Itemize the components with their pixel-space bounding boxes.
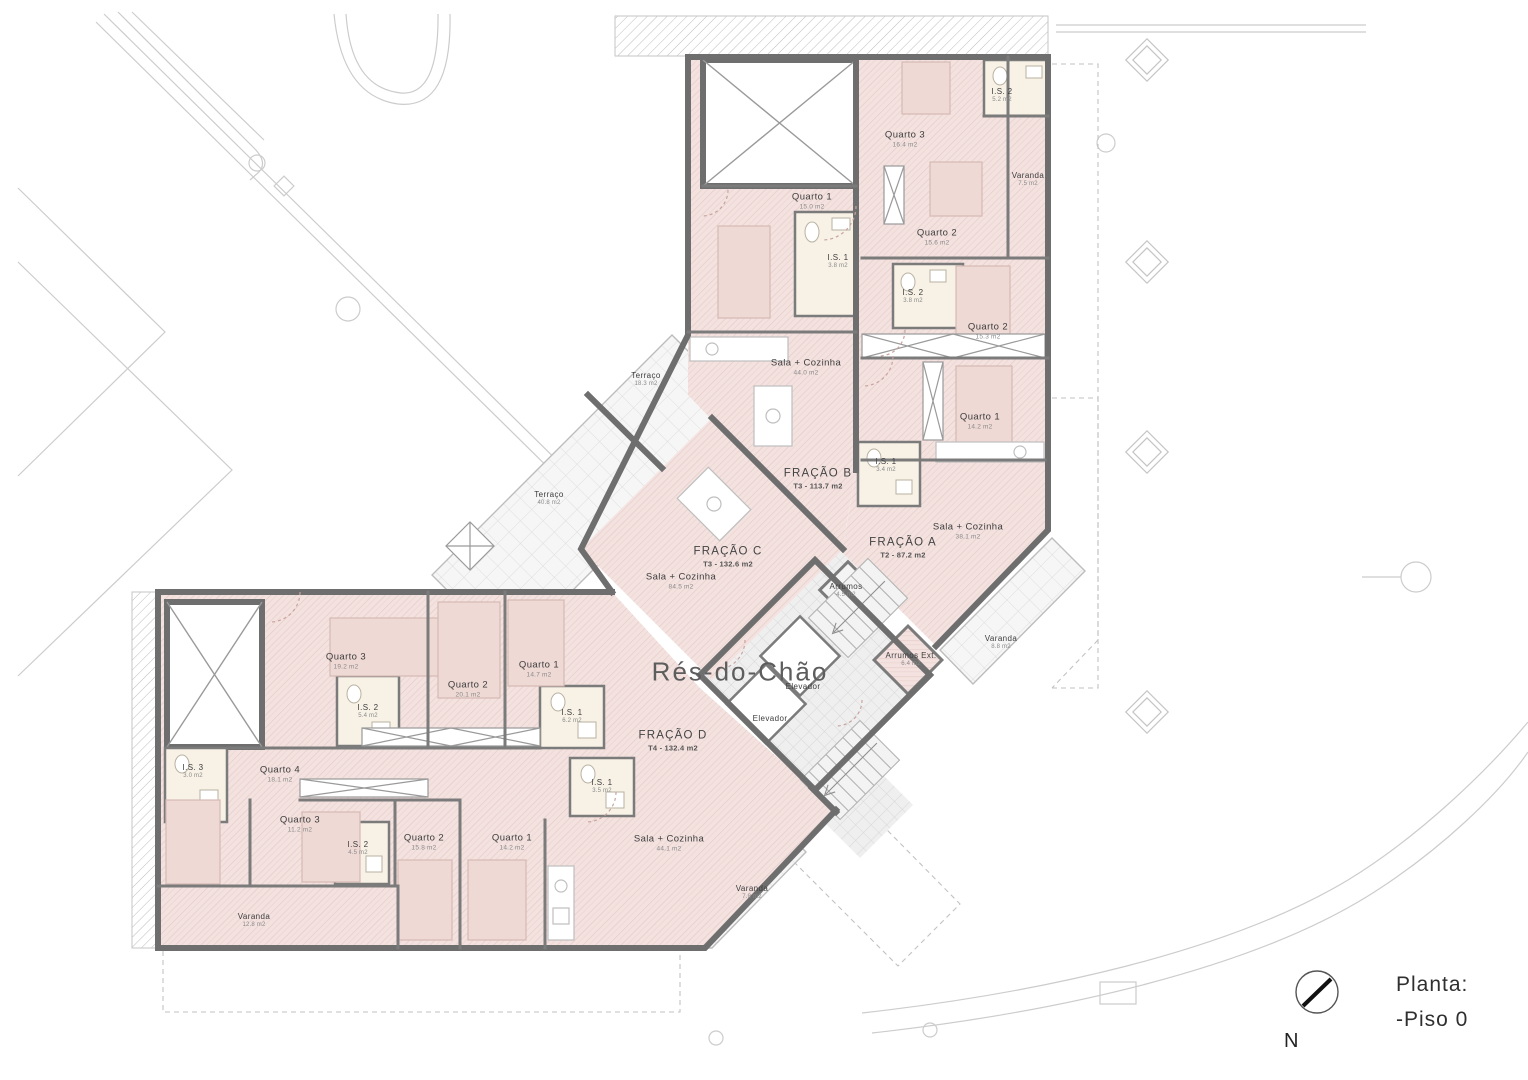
room-area: 5.4 m2	[357, 713, 378, 721]
room-name: Terraço	[631, 371, 660, 381]
room-name: I.S. 2	[347, 840, 368, 850]
room-label: Quarto 418.1 m2	[260, 765, 300, 786]
room-name: I.S. 2	[991, 87, 1012, 97]
room-name: I.S. 1	[827, 253, 848, 263]
room-name: Varanda	[736, 884, 768, 894]
room-area: 16.4 m2	[885, 142, 925, 150]
room-label: Sala + Cozinha44.1 m2	[634, 834, 704, 855]
room-label: I.S. 16.2 m2	[561, 708, 582, 726]
fraction-label: FRAÇÃO DT4 - 132.4 m2	[638, 729, 707, 754]
room-label: Quarto 215.6 m2	[917, 228, 957, 249]
room-area: 3.8 m2	[827, 263, 848, 271]
room-label: Quarto 220.1 m2	[448, 680, 488, 701]
room-label: Varanda8.8 m2	[985, 634, 1017, 652]
room-area: T4 - 132.4 m2	[638, 744, 707, 754]
room-name: I.S. 3	[182, 763, 203, 773]
fraction-label: FRAÇÃO BT3 - 113.7 m2	[784, 467, 852, 492]
room-name: Quarto 2	[968, 322, 1008, 334]
title-block-label: Planta:	[1396, 968, 1468, 1003]
room-name: Quarto 1	[792, 192, 832, 204]
room-label: Varanda7.5 m2	[1012, 171, 1044, 189]
room-label: Quarto 114.2 m2	[492, 833, 532, 854]
room-area: 4.5 m2	[829, 592, 862, 600]
room-name: Quarto 2	[404, 833, 444, 845]
room-label: I.S. 25.2 m2	[991, 87, 1012, 105]
room-area: 11.2 m2	[280, 827, 320, 835]
room-area: 5.2 m2	[991, 97, 1012, 105]
room-name: FRAÇÃO A	[869, 536, 937, 551]
room-area: 19.2 m2	[326, 664, 366, 672]
room-area: 7.8 m2	[736, 894, 768, 902]
room-area: 12.8 m2	[238, 922, 270, 930]
room-name: Terraço	[534, 490, 563, 500]
title-block-floor: -Piso 0	[1396, 1003, 1468, 1038]
room-label: Quarto 215.3 m2	[968, 322, 1008, 343]
room-area: 6.2 m2	[561, 718, 582, 726]
room-name: FRAÇÃO D	[638, 729, 707, 744]
room-area: 3.4 m2	[875, 467, 896, 475]
room-name: I.S. 1	[561, 708, 582, 718]
north-label: N	[1284, 1030, 1298, 1053]
room-area: 44.0 m2	[771, 370, 841, 378]
room-name: Sala + Cozinha	[933, 522, 1003, 534]
room-area: 3.5 m2	[591, 788, 612, 796]
room-label: Quarto 115.0 m2	[792, 192, 832, 213]
room-name: I.S. 2	[902, 288, 923, 298]
room-label: I.S. 13.4 m2	[875, 457, 896, 475]
room-label: I.S. 13.5 m2	[591, 778, 612, 796]
room-label: Sala + Cozinha84.5 m2	[646, 572, 716, 593]
room-area: 7.5 m2	[1012, 181, 1044, 189]
room-name: Sala + Cozinha	[646, 572, 716, 584]
room-label: Terraço18.3 m2	[631, 371, 660, 389]
room-area: 15.6 m2	[917, 240, 957, 248]
room-name: Sala + Cozinha	[634, 834, 704, 846]
room-label: Quarto 114.7 m2	[519, 660, 559, 681]
room-area: T3 - 113.7 m2	[784, 482, 852, 492]
room-area: 6.4 m2	[885, 661, 936, 669]
room-name: Arrumos	[829, 582, 862, 592]
room-label: Sala + Cozinha38.1 m2	[933, 522, 1003, 543]
room-name: Quarto 2	[917, 228, 957, 240]
room-name: Quarto 3	[280, 815, 320, 827]
room-name: Sala + Cozinha	[771, 358, 841, 370]
room-label: Arrumos4.5 m2	[829, 582, 862, 600]
room-name: Arrumos Ext.	[885, 651, 936, 661]
room-name: Varanda	[238, 912, 270, 922]
room-label: I.S. 33.0 m2	[182, 763, 203, 781]
room-name: Quarto 1	[519, 660, 559, 672]
room-name: Elevador	[753, 714, 788, 724]
room-area: 84.5 m2	[646, 584, 716, 592]
room-name: Varanda	[1012, 171, 1044, 181]
room-label: I.S. 13.8 m2	[827, 253, 848, 271]
room-area: 3.0 m2	[182, 773, 203, 781]
room-area: 38.1 m2	[933, 534, 1003, 542]
room-name: Quarto 1	[492, 833, 532, 845]
room-area: 18.1 m2	[260, 777, 300, 785]
room-area: 14.2 m2	[492, 845, 532, 853]
room-name: FRAÇÃO C	[693, 545, 762, 560]
room-area: T3 - 132.6 m2	[693, 560, 762, 570]
room-area: 18.3 m2	[631, 381, 660, 389]
room-area: 44.1 m2	[634, 846, 704, 854]
room-area: 15.0 m2	[792, 204, 832, 212]
room-name: Quarto 3	[326, 652, 366, 664]
room-area: T2 - 87.2 m2	[869, 551, 937, 561]
room-label: Arrumos Ext.6.4 m2	[885, 651, 936, 669]
room-label: Quarto 311.2 m2	[280, 815, 320, 836]
room-name: I.S. 2	[357, 703, 378, 713]
room-area: 3.8 m2	[902, 298, 923, 306]
room-area: 4.5 m2	[347, 850, 368, 858]
room-name: I.S. 1	[875, 457, 896, 467]
room-label: Quarto 215.8 m2	[404, 833, 444, 854]
room-label: Sala + Cozinha44.0 m2	[771, 358, 841, 379]
room-label: Quarto 319.2 m2	[326, 652, 366, 673]
room-area: 14.7 m2	[519, 672, 559, 680]
room-name: Quarto 3	[885, 130, 925, 142]
room-name: Varanda	[985, 634, 1017, 644]
room-label: Varanda12.8 m2	[238, 912, 270, 930]
fraction-label: FRAÇÃO AT2 - 87.2 m2	[869, 536, 937, 561]
fraction-label: FRAÇÃO CT3 - 132.6 m2	[693, 545, 762, 570]
room-area: 15.3 m2	[968, 334, 1008, 342]
room-label: I.S. 25.4 m2	[357, 703, 378, 721]
room-name: Quarto 4	[260, 765, 300, 777]
room-area: 8.8 m2	[985, 644, 1017, 652]
room-label: I.S. 24.5 m2	[347, 840, 368, 858]
room-label: Elevador	[753, 714, 788, 724]
room-label: Quarto 114.2 m2	[960, 412, 1000, 433]
room-label: Varanda7.8 m2	[736, 884, 768, 902]
floor-name-label: Rés-do-Chão	[652, 657, 829, 688]
room-area: 15.8 m2	[404, 845, 444, 853]
floor-plan-canvas: Quarto 316.4 m2I.S. 25.2 m2Varanda7.5 m2…	[0, 0, 1528, 1080]
room-name: Quarto 1	[960, 412, 1000, 424]
labels-layer: Quarto 316.4 m2I.S. 25.2 m2Varanda7.5 m2…	[0, 0, 1528, 1080]
room-area: 40.8 m2	[534, 500, 563, 508]
room-area: 14.2 m2	[960, 424, 1000, 432]
room-area: 20.1 m2	[448, 692, 488, 700]
room-name: I.S. 1	[591, 778, 612, 788]
room-label: I.S. 23.8 m2	[902, 288, 923, 306]
room-name: Quarto 2	[448, 680, 488, 692]
room-label: Quarto 316.4 m2	[885, 130, 925, 151]
room-name: FRAÇÃO B	[784, 467, 852, 482]
title-block: Planta: -Piso 0	[1396, 968, 1468, 1037]
room-label: Terraço40.8 m2	[534, 490, 563, 508]
